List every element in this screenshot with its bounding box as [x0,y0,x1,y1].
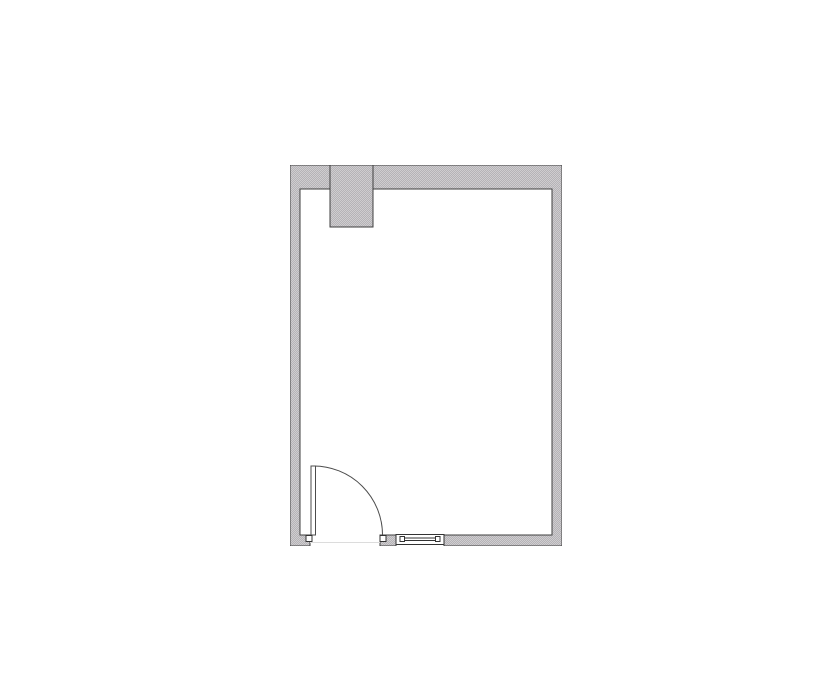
room-plan [290,165,562,546]
door-jamb-right [380,536,386,542]
door-jamb-left [306,536,312,542]
door-leaf[interactable] [311,466,316,535]
floorplan-canvas [0,0,835,678]
window-mullion-right [436,537,441,542]
column-projection[interactable] [330,165,373,227]
window-mullion-left [400,537,405,542]
door-swing-arc [314,466,383,535]
room-plan-drawing [290,165,562,546]
window[interactable] [396,535,444,545]
